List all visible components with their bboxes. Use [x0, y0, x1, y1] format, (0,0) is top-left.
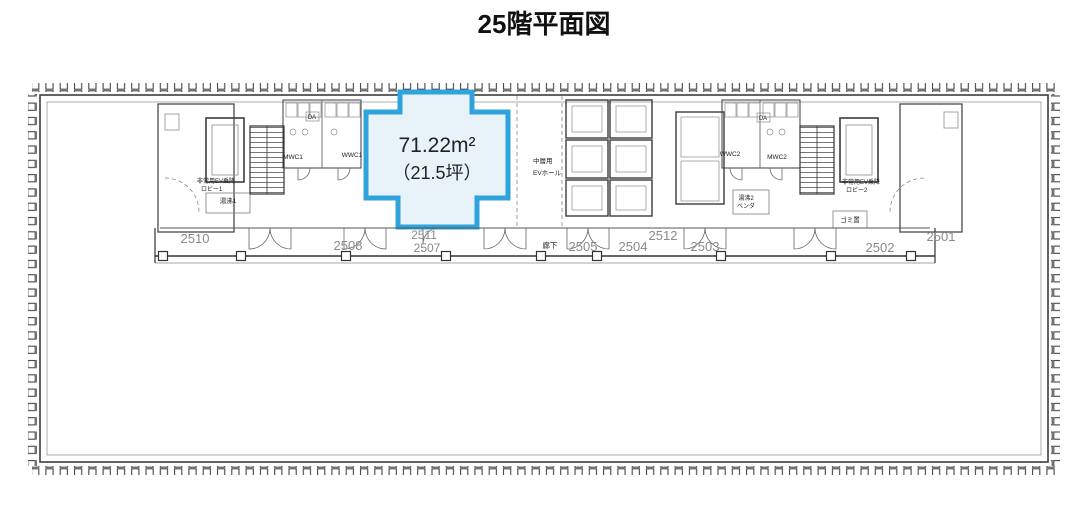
wc-stall — [325, 103, 336, 117]
vacant-unit-area-m2: 71.22m² — [398, 134, 475, 157]
double-door-arc — [794, 228, 836, 249]
room-number-2501: 2501 — [927, 229, 956, 244]
mullion-row-bottom — [32, 466, 1056, 475]
elevator-car — [616, 186, 646, 210]
column — [827, 252, 836, 261]
door-swing-dashed-right — [890, 178, 924, 212]
stairs-left — [250, 126, 284, 194]
wc-stall — [349, 103, 360, 117]
ev-hall-label-line2: EVホール — [533, 169, 562, 177]
inner-wall-line — [47, 102, 1041, 455]
vacant-unit-area-tsubo: （21.5坪） — [392, 163, 481, 183]
mullion-row-top — [32, 83, 1056, 92]
vendor-label: ベンダ — [737, 202, 755, 210]
wc-fixture — [779, 129, 785, 135]
elevator-car — [572, 186, 602, 210]
double-door-arc — [249, 228, 291, 249]
left-wing — [158, 100, 361, 232]
room-number-2512: 2512 — [649, 228, 678, 243]
column — [442, 252, 451, 261]
wc-stall — [337, 103, 348, 117]
elevator-car — [681, 161, 719, 201]
vacant-unit-highlight: 71.22m² （21.5坪） — [366, 92, 508, 244]
elevator-car — [681, 117, 719, 157]
mullion-col-right — [1051, 94, 1060, 466]
garbage-label: ゴミ置 — [840, 215, 860, 224]
left-closet — [165, 114, 179, 130]
hot-water2-label: 湯沸2 — [738, 194, 754, 202]
elevator-shaft-east — [676, 112, 724, 204]
page-title: 25階平面図 — [478, 9, 611, 39]
elevator-car — [572, 106, 602, 132]
wc-door-arc — [730, 168, 742, 180]
ev-lobby2-label-line1: 非常用EV乗降 — [842, 178, 880, 186]
right-closet — [944, 112, 958, 128]
column — [159, 252, 168, 261]
wc-stall — [787, 103, 798, 117]
mwc2-label: MWC2 — [767, 154, 787, 161]
wc-stall — [763, 103, 774, 117]
room-number-2502: 2502 — [866, 240, 895, 255]
room-number-2505: 2505 — [569, 239, 598, 254]
room-number-2511: 2511 — [411, 228, 437, 242]
stairs-right — [800, 126, 834, 194]
elevator-car — [572, 146, 602, 172]
emergency-elevator-right — [840, 118, 878, 182]
corridor-label: 廊下 — [543, 240, 558, 250]
room-number-2508: 2508 — [334, 238, 363, 253]
outer-wall — [40, 95, 1048, 462]
duct-label-left: DA — [308, 115, 316, 121]
column — [237, 252, 246, 261]
room-number-2507: 2507 — [414, 241, 441, 255]
wc-door-arc — [770, 168, 782, 180]
room-2501-outline — [900, 104, 962, 232]
elevator-car — [616, 106, 646, 132]
vacant-unit-cross-outline — [366, 92, 508, 227]
wc-fixture — [290, 129, 296, 135]
column — [907, 252, 916, 261]
wwc1-label: WWC1 — [342, 152, 363, 159]
ev-hall-label-line1: 中層用 — [533, 156, 553, 165]
wc-stall — [775, 103, 786, 117]
double-door-arc — [484, 228, 526, 249]
wc-fixture — [331, 129, 337, 135]
perimeter-mullion-ticks — [28, 83, 1060, 475]
ev-lobby2-label-line2: ロビー2 — [846, 186, 868, 194]
wc-stall — [749, 103, 760, 117]
wwc2-label: WWC2 — [720, 151, 741, 158]
ev-lobby1-label-line1: 非常用EV乗降 — [197, 177, 235, 185]
elevator-car — [616, 146, 646, 172]
wc-stall — [725, 103, 736, 117]
room-number-2503: 2503 — [691, 239, 720, 254]
wc-fixture — [302, 129, 308, 135]
elevator-car-right — [846, 125, 872, 175]
elevator-bank-east — [676, 112, 724, 204]
wc-door-arc — [338, 168, 350, 180]
column — [537, 252, 546, 261]
wc-stall — [737, 103, 748, 117]
wc-fixture — [767, 129, 773, 135]
duct-label-right: DA — [759, 116, 767, 122]
mwc1-label: MWC1 — [283, 154, 303, 161]
room-number-2510: 2510 — [181, 231, 210, 246]
room-number-2504: 2504 — [619, 239, 648, 254]
floor-plan-page: 25階平面図 — [0, 0, 1089, 524]
wc-door-arc — [298, 168, 310, 180]
emergency-elevator-left — [206, 118, 244, 182]
elevator-bank-center — [566, 100, 652, 216]
ev-lobby1-label-line2: ロビー1 — [201, 185, 223, 193]
mullion-col-left — [28, 94, 37, 466]
floor-plan-svg: 25階平面図 — [0, 0, 1089, 524]
core-band: 71.22m² （21.5坪） — [155, 92, 962, 263]
door-swing-dashed-left — [165, 178, 199, 212]
building-outline — [40, 95, 1048, 462]
wc-stall — [286, 103, 297, 117]
hot-water1-label: 湯沸1 — [220, 196, 237, 205]
hot-water-vendor-room — [733, 190, 769, 214]
